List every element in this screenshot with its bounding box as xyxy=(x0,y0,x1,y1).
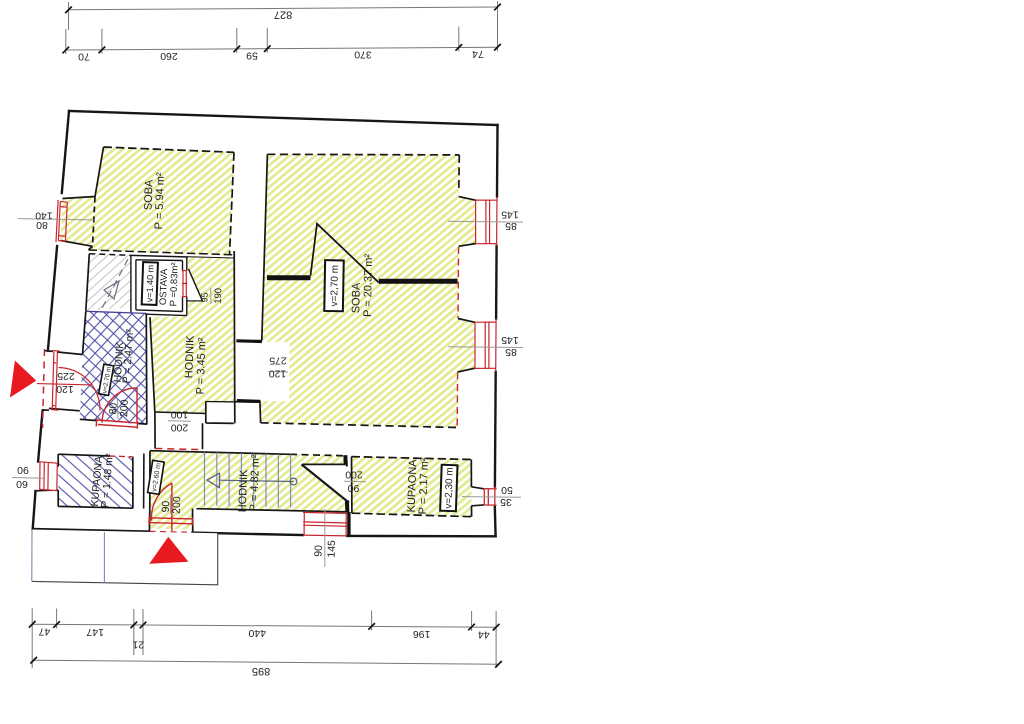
svg-text:74: 74 xyxy=(472,48,484,60)
svg-text:85: 85 xyxy=(505,220,517,232)
svg-text:P = 5.94 m²: P = 5.94 m² xyxy=(153,172,167,230)
svg-text:827: 827 xyxy=(274,8,292,20)
svg-text:190: 190 xyxy=(213,288,225,304)
svg-text:SOBA: SOBA xyxy=(350,282,363,313)
svg-text:145: 145 xyxy=(501,334,519,346)
svg-text:200: 200 xyxy=(118,399,131,417)
svg-text:200: 200 xyxy=(345,469,363,481)
svg-text:275: 275 xyxy=(269,355,287,367)
svg-text:145: 145 xyxy=(501,209,519,221)
svg-text:80: 80 xyxy=(36,219,48,231)
svg-text:60: 60 xyxy=(16,478,28,490)
svg-text:440: 440 xyxy=(248,627,266,639)
svg-text:200: 200 xyxy=(171,496,184,514)
svg-text:P = 20.37 m²: P = 20.37 m² xyxy=(362,253,375,317)
svg-text:21: 21 xyxy=(132,639,144,651)
svg-text:95: 95 xyxy=(199,292,209,302)
svg-text:47: 47 xyxy=(38,626,50,638)
svg-text:90: 90 xyxy=(313,545,325,557)
svg-text:P = 4.82 m²: P = 4.82 m² xyxy=(248,454,262,512)
svg-text:44: 44 xyxy=(478,628,490,640)
svg-text:v=2,70 m: v=2,70 m xyxy=(329,265,341,307)
svg-text:147: 147 xyxy=(86,626,104,638)
svg-text:v=2,30 m: v=2,30 m xyxy=(443,467,455,509)
svg-text:P = 2.17 m²: P = 2.17 m² xyxy=(417,457,431,515)
svg-text:200: 200 xyxy=(171,422,189,434)
svg-text:90: 90 xyxy=(348,482,360,494)
svg-text:59: 59 xyxy=(246,49,258,61)
svg-text:196: 196 xyxy=(413,628,431,640)
svg-text:100: 100 xyxy=(171,409,189,421)
svg-text:P = 3.45 m²: P = 3.45 m² xyxy=(195,337,209,395)
svg-text:35: 35 xyxy=(500,496,512,508)
svg-text:120: 120 xyxy=(269,368,287,380)
svg-text:260: 260 xyxy=(160,50,178,62)
svg-text:370: 370 xyxy=(354,49,372,61)
svg-text:145: 145 xyxy=(325,540,338,558)
svg-text:v=1.40 m: v=1.40 m xyxy=(144,265,155,303)
svg-text:85: 85 xyxy=(505,346,517,358)
svg-text:70: 70 xyxy=(78,50,90,62)
svg-text:225: 225 xyxy=(57,370,75,382)
svg-text:90: 90 xyxy=(17,464,29,476)
svg-text:895: 895 xyxy=(252,665,270,677)
svg-text:120: 120 xyxy=(56,383,74,395)
svg-text:P =0.83m²: P =0.83m² xyxy=(168,262,181,306)
svg-text:50: 50 xyxy=(501,484,513,496)
